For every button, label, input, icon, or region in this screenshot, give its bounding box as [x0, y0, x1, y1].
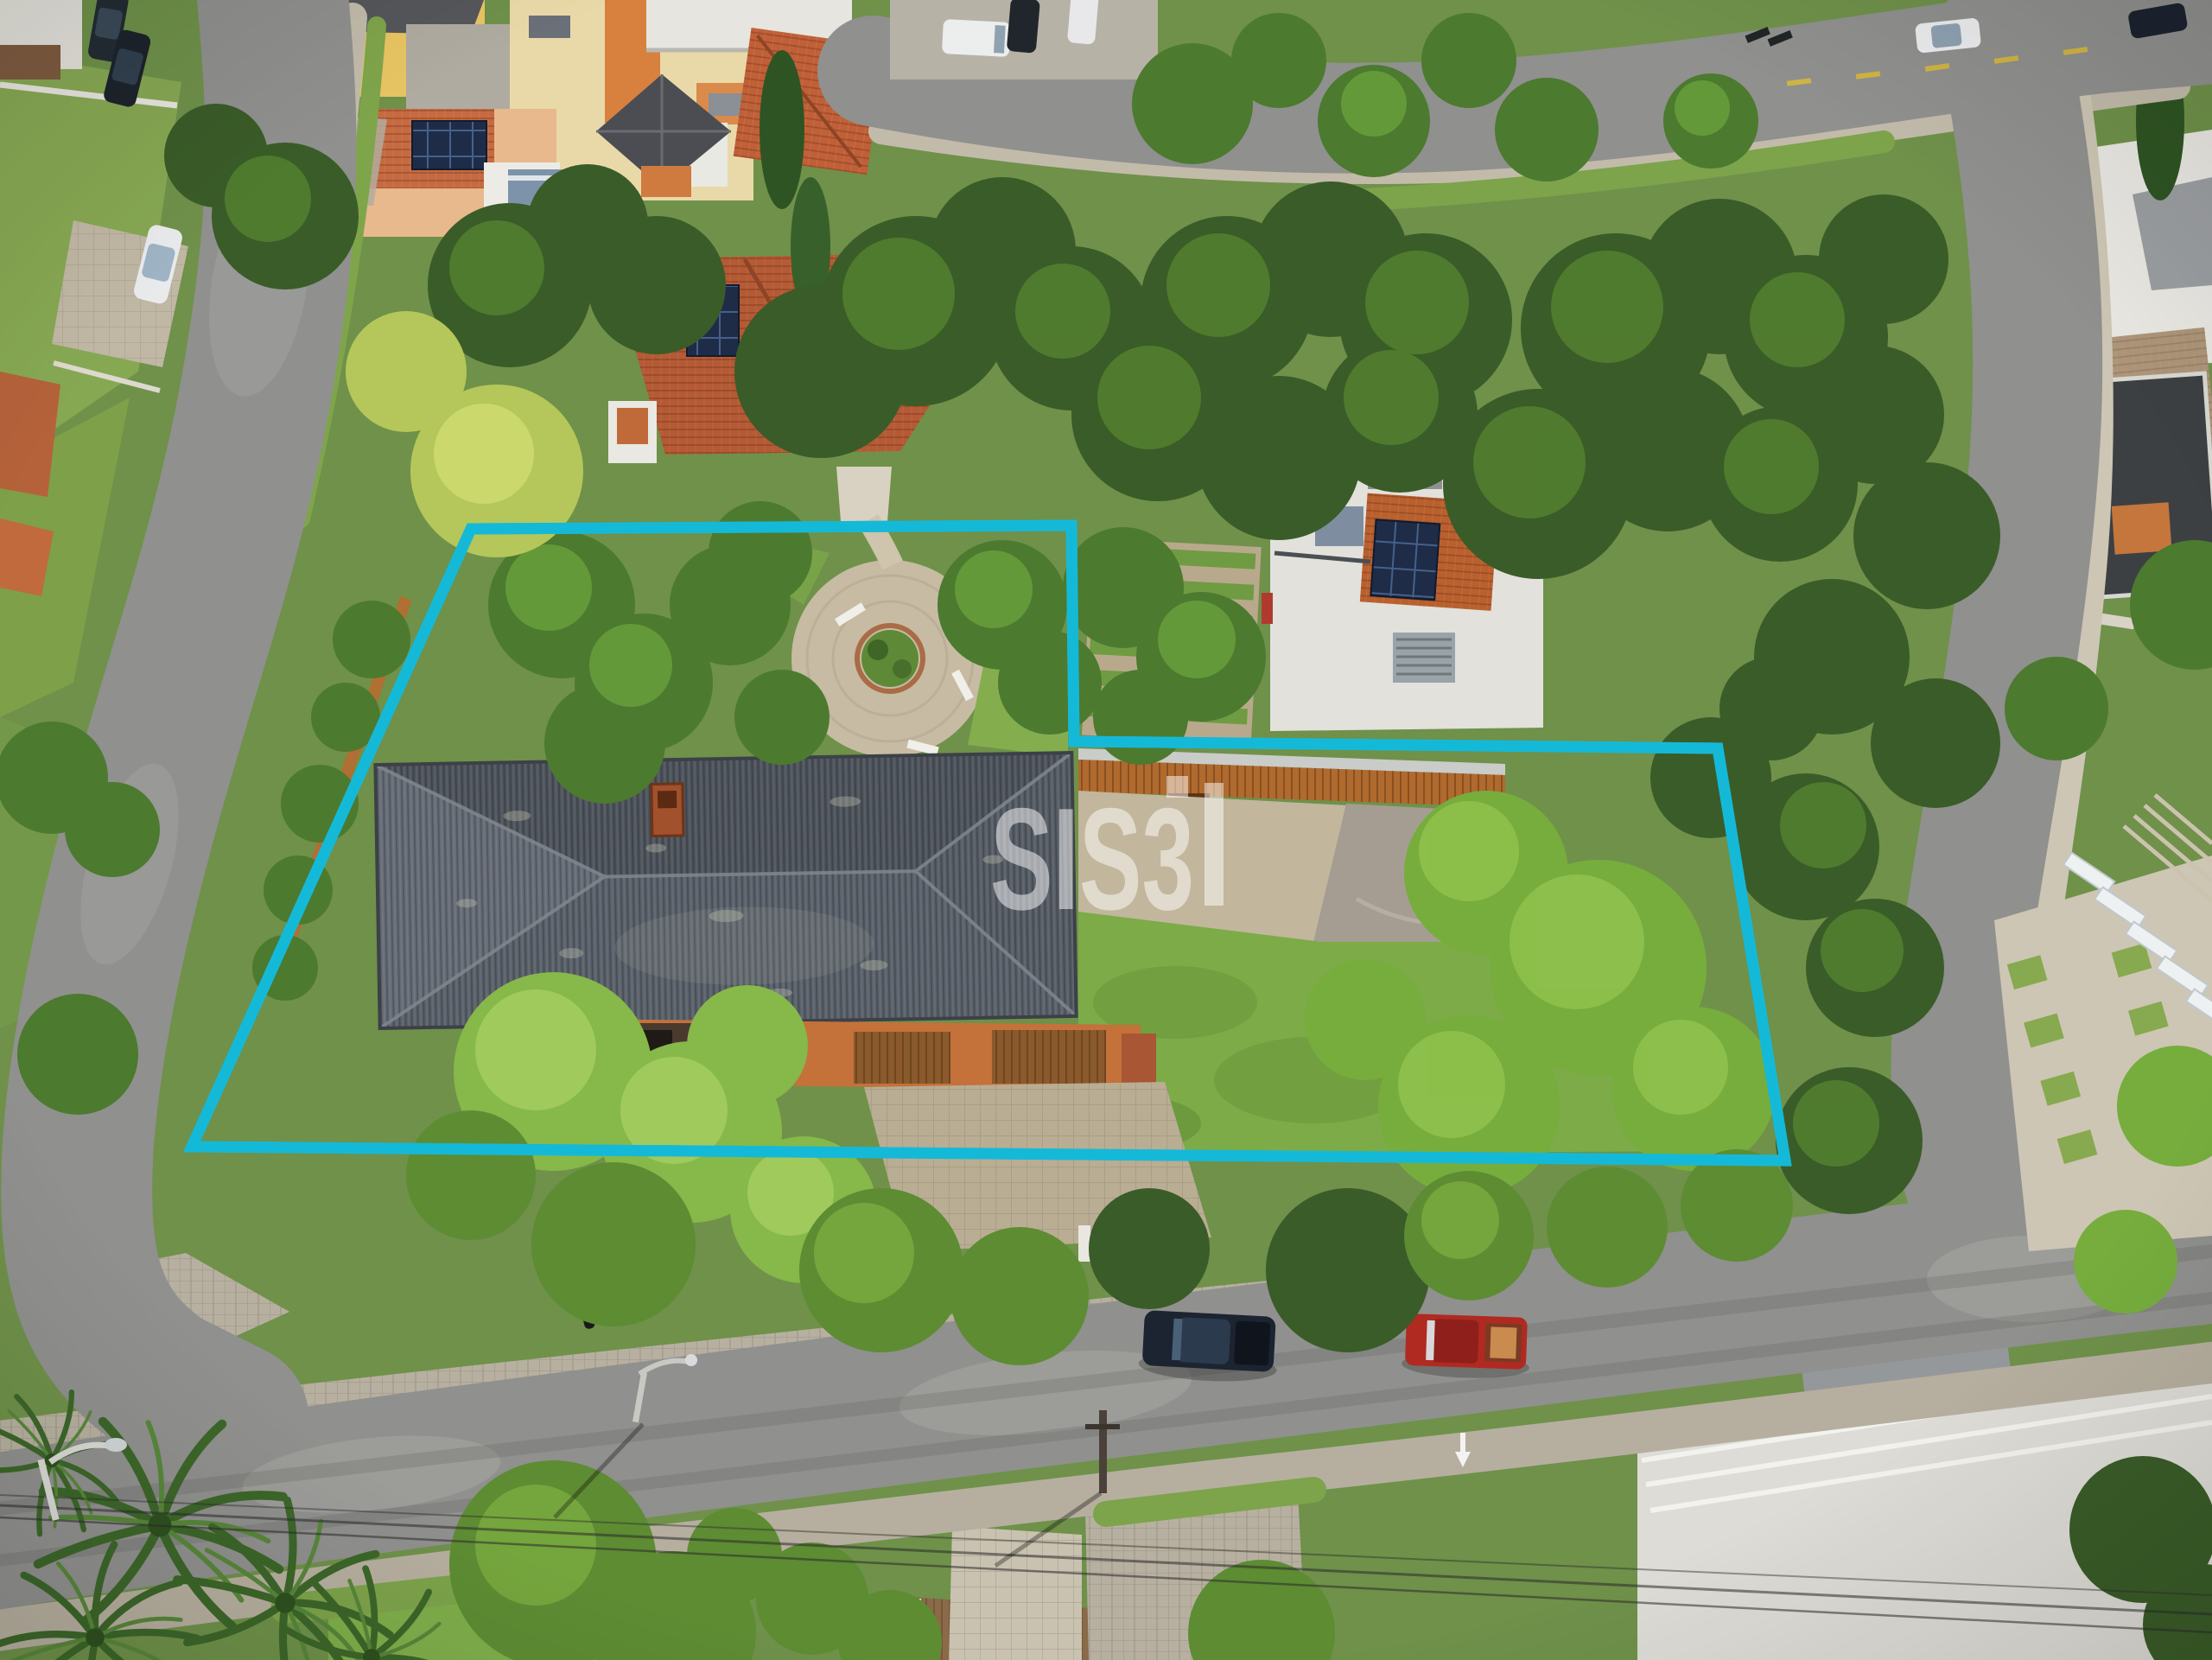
aerial-photo-stage: SIS3 — [0, 0, 2212, 1660]
vignette — [0, 0, 2212, 1660]
aerial-photo: SIS3 — [0, 0, 2212, 1660]
